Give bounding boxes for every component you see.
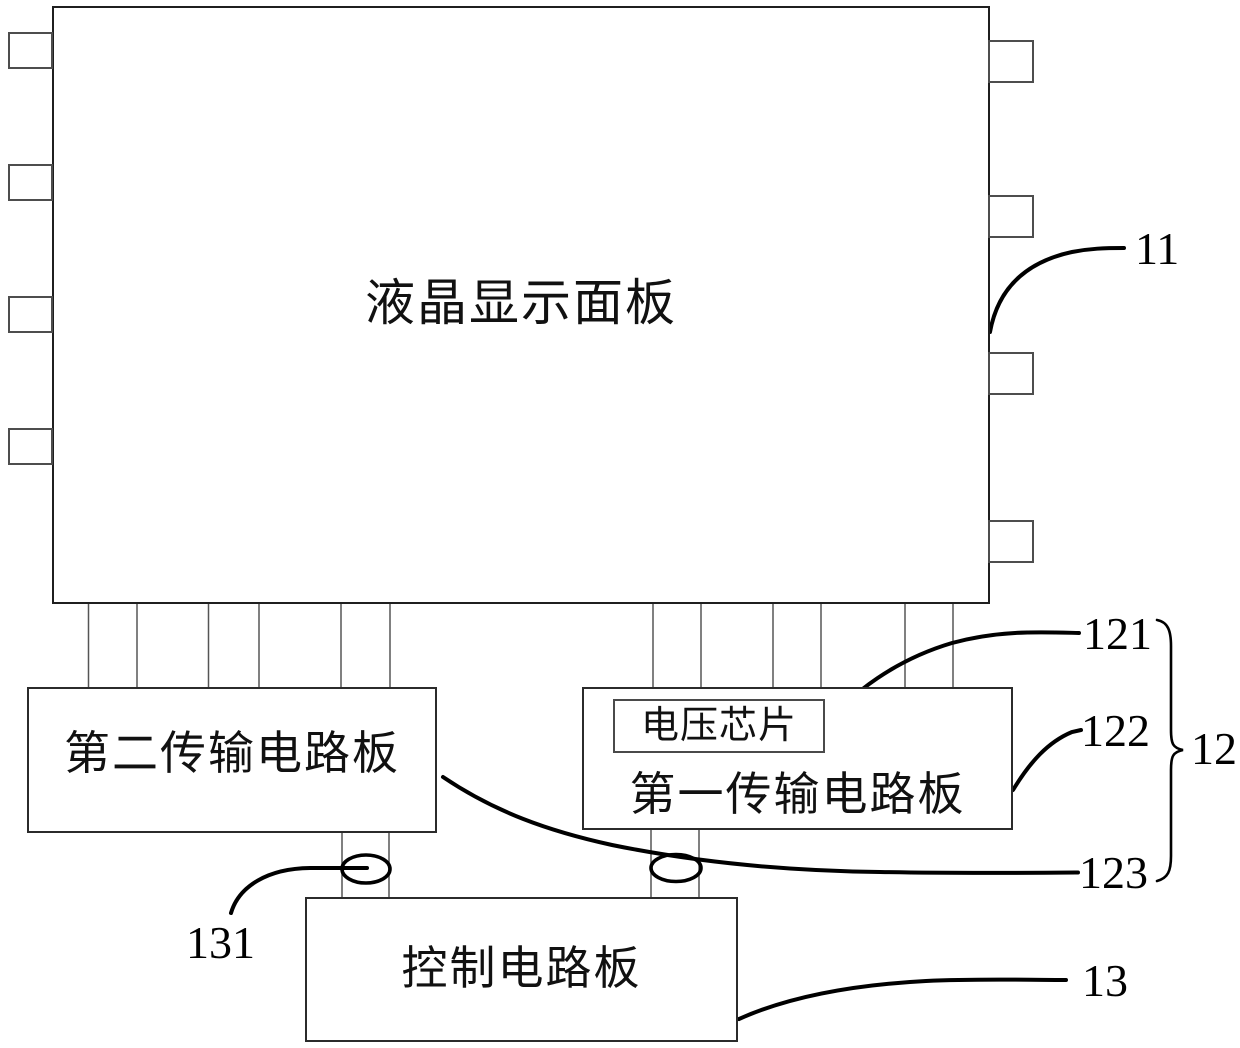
panel-tab-right-3 bbox=[988, 352, 1034, 395]
panel-tab-left-2 bbox=[8, 164, 53, 201]
cable-legs-left-group bbox=[89, 604, 391, 688]
leader-line-13 bbox=[739, 980, 1066, 1019]
panel-tab-right-2 bbox=[988, 195, 1034, 238]
second-transmission-board-label: 第二传输电路板 bbox=[27, 731, 437, 777]
lcd-panel-label: 液晶显示面板 bbox=[52, 278, 990, 328]
ref-13: 13 bbox=[1082, 958, 1128, 1004]
first-transmission-board-label: 第一传输电路板 bbox=[582, 772, 1013, 818]
ref-123: 123 bbox=[1079, 850, 1148, 896]
ref-11: 11 bbox=[1135, 226, 1179, 272]
voltage-chip-label: 电压芯片 bbox=[613, 707, 825, 745]
ref-122: 122 bbox=[1081, 708, 1150, 754]
control-board-label: 控制电路板 bbox=[305, 946, 738, 992]
cable-legs-first-to-control bbox=[651, 830, 699, 898]
leader-line-11 bbox=[990, 248, 1124, 332]
panel-tab-left-1 bbox=[8, 32, 53, 69]
ref-121: 121 bbox=[1083, 611, 1152, 657]
cable-legs-second-to-control bbox=[342, 832, 389, 898]
ref-131: 131 bbox=[186, 920, 255, 966]
panel-tab-left-3 bbox=[8, 296, 53, 333]
patent-figure: 液晶显示面板 第二传输电路板 电压芯片 第一传输电路板 控制电路板 11 121… bbox=[0, 0, 1240, 1048]
leader-line-122 bbox=[1013, 730, 1081, 790]
panel-tab-right-4 bbox=[988, 520, 1034, 563]
panel-tab-left-4 bbox=[8, 428, 53, 465]
ref-12: 12 bbox=[1191, 726, 1237, 772]
panel-tab-right-1 bbox=[988, 40, 1034, 83]
cable-legs-right-group bbox=[653, 604, 953, 688]
group-brace-12 bbox=[1157, 620, 1183, 881]
